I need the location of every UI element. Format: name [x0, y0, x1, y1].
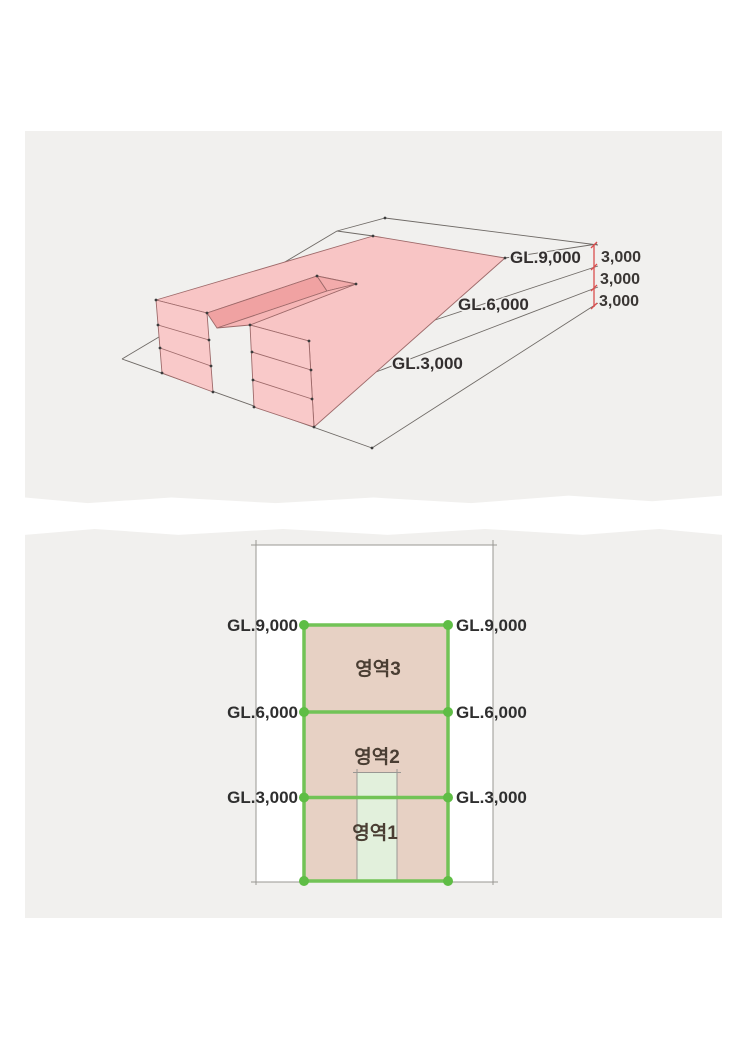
gl-9000-label-3d: GL.9,000 [510, 248, 581, 267]
gl-6000-label-3d: GL.6,000 [458, 295, 529, 314]
page: GL.9,000 GL.6,000 GL.3,000 3,000 3,000 3… [0, 0, 750, 1061]
area-1-label: 영역1 [352, 822, 398, 844]
gl-3000-label-plan-right: GL.3,000 [456, 788, 527, 807]
height-dimension-line [591, 242, 597, 309]
gl-6000-label-plan-right: GL.6,000 [456, 703, 527, 722]
gl-3000-label-3d: GL.3,000 [392, 354, 463, 373]
back-band-closure-line [337, 231, 373, 236]
gl-9000-label-plan-right: GL.9,000 [456, 616, 527, 635]
massing-3d-view: GL.9,000 GL.6,000 GL.3,000 3,000 3,000 3… [122, 217, 641, 450]
dim-3000-label-2: 3,000 [600, 271, 640, 288]
area-2-label: 영역2 [354, 746, 400, 768]
area-3-label: 영역3 [355, 658, 401, 680]
gl-3000-label-plan-left: GL.3,000 [227, 788, 298, 807]
gl-6000-label-plan-left: GL.6,000 [227, 703, 298, 722]
dim-3000-label-3: 3,000 [599, 293, 639, 310]
near-bar-end-face [250, 325, 314, 427]
site-plan-view: GL.9,000 GL.6,000 GL.3,000 GL.9,000 GL.6… [227, 540, 527, 886]
left-bar-end-face [156, 300, 213, 392]
building-mass [156, 236, 505, 427]
diagram-canvas: GL.9,000 GL.6,000 GL.3,000 3,000 3,000 3… [0, 0, 750, 1061]
gl-9000-label-plan-left: GL.9,000 [227, 616, 298, 635]
dim-3000-label-1: 3,000 [601, 249, 641, 266]
